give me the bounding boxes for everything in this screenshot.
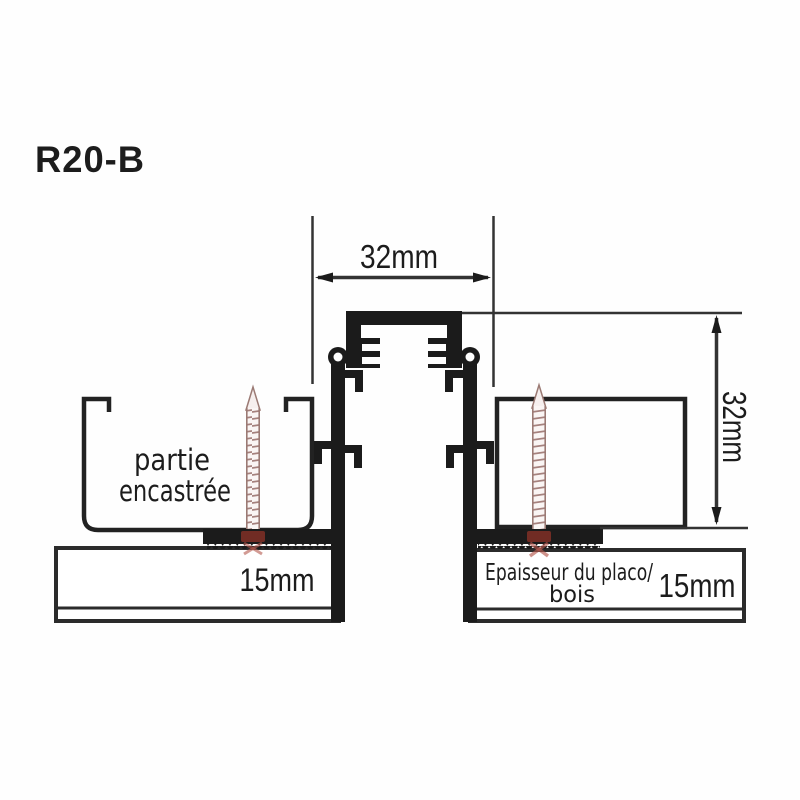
dimension-label-board-left: 15mm: [240, 562, 315, 598]
diagram-title: R20-B: [35, 139, 145, 180]
screw-left: [246, 387, 260, 538]
profile-leg-left: [331, 364, 345, 622]
dimension-label-board-right: 15mm: [659, 567, 736, 604]
label-board-thickness-line2: bois: [549, 582, 595, 608]
dimension-label-opening-width: 32mm: [360, 238, 438, 275]
dimension-label-profile-height: 32mm: [716, 391, 753, 463]
arrowhead-up: [712, 315, 722, 333]
serrated-teeth-left: [207, 543, 331, 549]
diagram-canvas: 32mm 32mm R20-B partie encastrée 15mm Ep…: [0, 0, 800, 800]
screw-tip: [246, 387, 260, 410]
arrowhead-left: [315, 273, 333, 283]
label-recessed-part-line1: partie: [134, 443, 210, 477]
arrowhead-right: [473, 273, 491, 283]
flange-left: [203, 529, 345, 544]
label-recessed-part-line2: encastrée: [119, 474, 231, 508]
technical-diagram: 32mm 32mm R20-B partie encastrée 15mm Ep…: [0, 0, 800, 800]
screw-tip: [532, 385, 546, 408]
profile-top-bar: [346, 311, 462, 325]
mounting-bracket-right: [497, 399, 685, 527]
profile-leg-right: [463, 364, 477, 622]
screw-right: [532, 385, 546, 538]
dimension-right-height: [462, 313, 748, 528]
arrowhead-down: [712, 507, 722, 525]
